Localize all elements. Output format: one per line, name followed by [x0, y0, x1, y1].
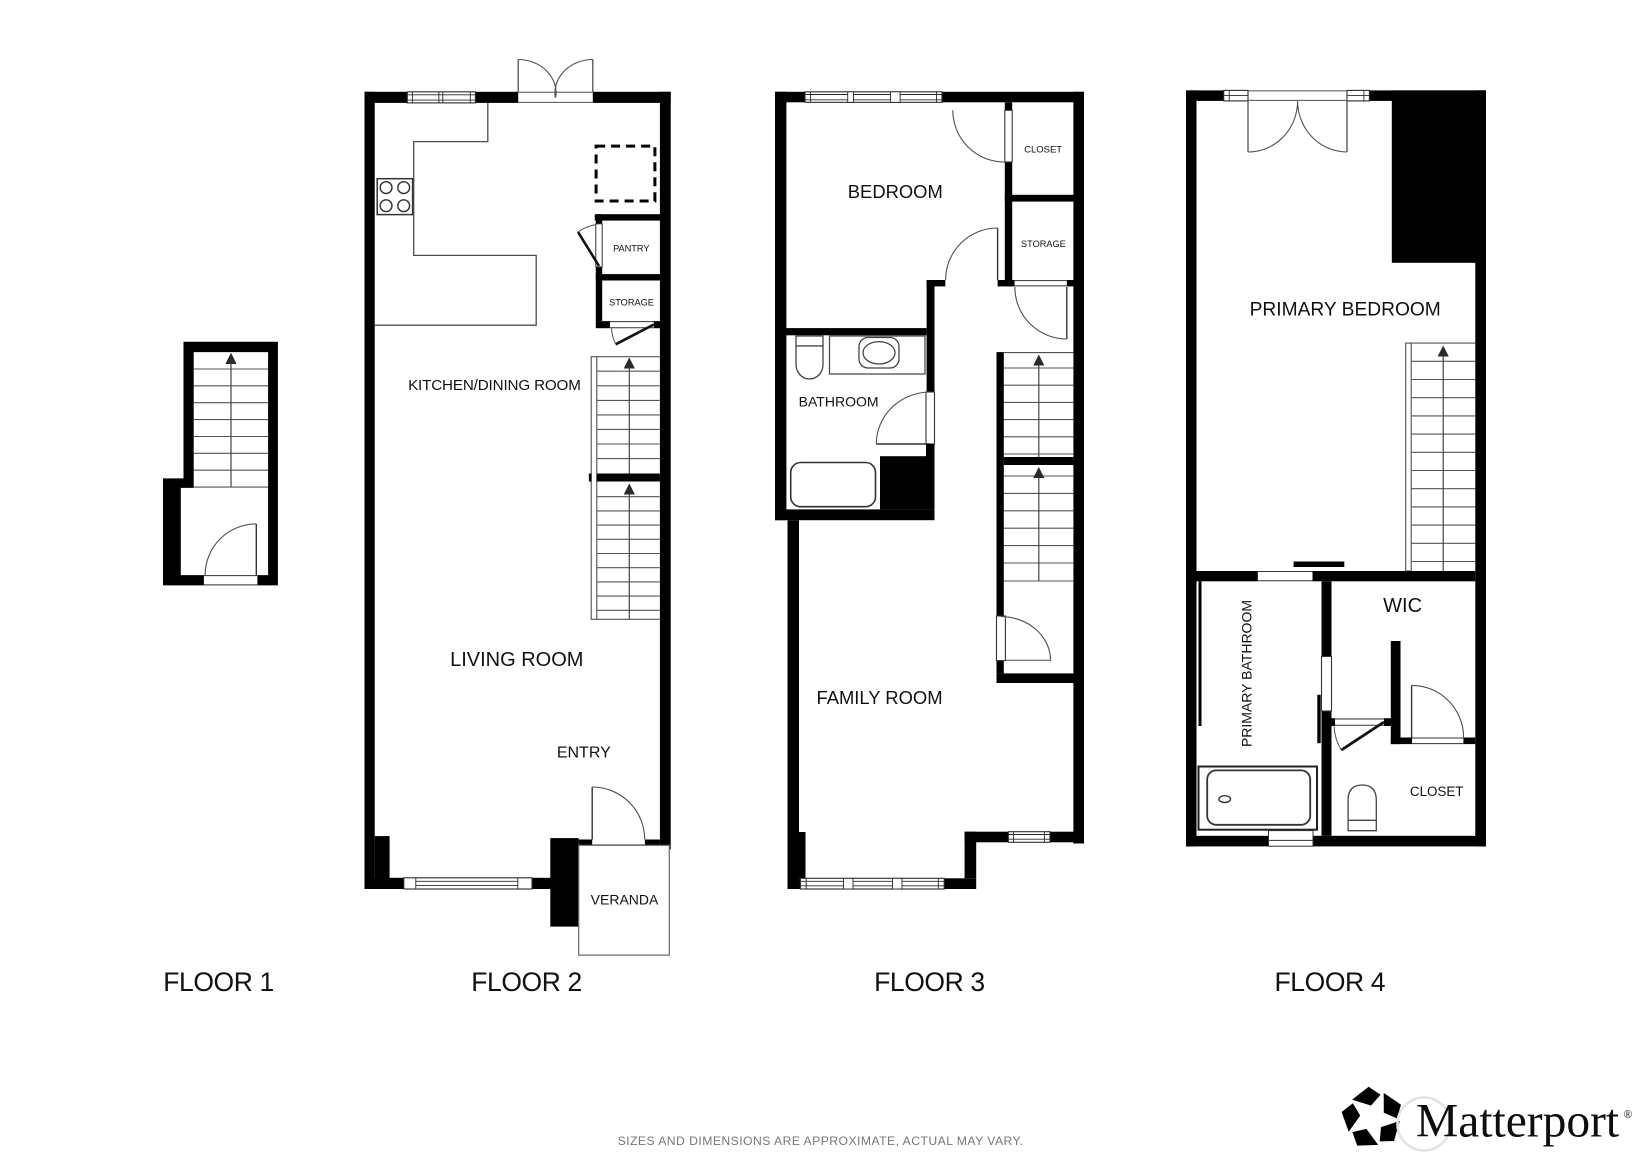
svg-text:®: ® — [1624, 1109, 1633, 1121]
svg-text:FAMILY ROOM: FAMILY ROOM — [816, 687, 942, 708]
svg-text:STORAGE: STORAGE — [1021, 239, 1066, 249]
svg-text:FLOOR 3: FLOOR 3 — [874, 967, 985, 997]
svg-text:BEDROOM: BEDROOM — [848, 181, 943, 202]
svg-text:PRIMARY BATHROOM: PRIMARY BATHROOM — [1239, 600, 1255, 747]
svg-text:STORAGE: STORAGE — [609, 298, 654, 308]
svg-text:CLOSET: CLOSET — [1410, 784, 1464, 799]
svg-text:FLOOR 1: FLOOR 1 — [163, 967, 274, 997]
svg-text:PANTRY: PANTRY — [613, 243, 649, 253]
svg-text:PRIMARY BEDROOM: PRIMARY BEDROOM — [1250, 300, 1441, 321]
svg-text:VERANDA: VERANDA — [591, 891, 659, 907]
svg-text:FLOOR 4: FLOOR 4 — [1275, 967, 1386, 997]
svg-text:WIC: WIC — [1383, 595, 1422, 617]
svg-text:KITCHEN/DINING ROOM: KITCHEN/DINING ROOM — [408, 377, 581, 394]
svg-text:LIVING ROOM: LIVING ROOM — [450, 649, 583, 671]
svg-text:BATHROOM: BATHROOM — [799, 393, 879, 409]
svg-text:FLOOR 2: FLOOR 2 — [471, 967, 582, 997]
svg-text:Matterport: Matterport — [1416, 1096, 1619, 1148]
svg-text:CLOSET: CLOSET — [1024, 145, 1062, 156]
svg-text:ENTRY: ENTRY — [557, 744, 611, 761]
svg-text:SIZES AND DIMENSIONS ARE APPRO: SIZES AND DIMENSIONS ARE APPROXIMATE, AC… — [618, 1134, 1024, 1148]
